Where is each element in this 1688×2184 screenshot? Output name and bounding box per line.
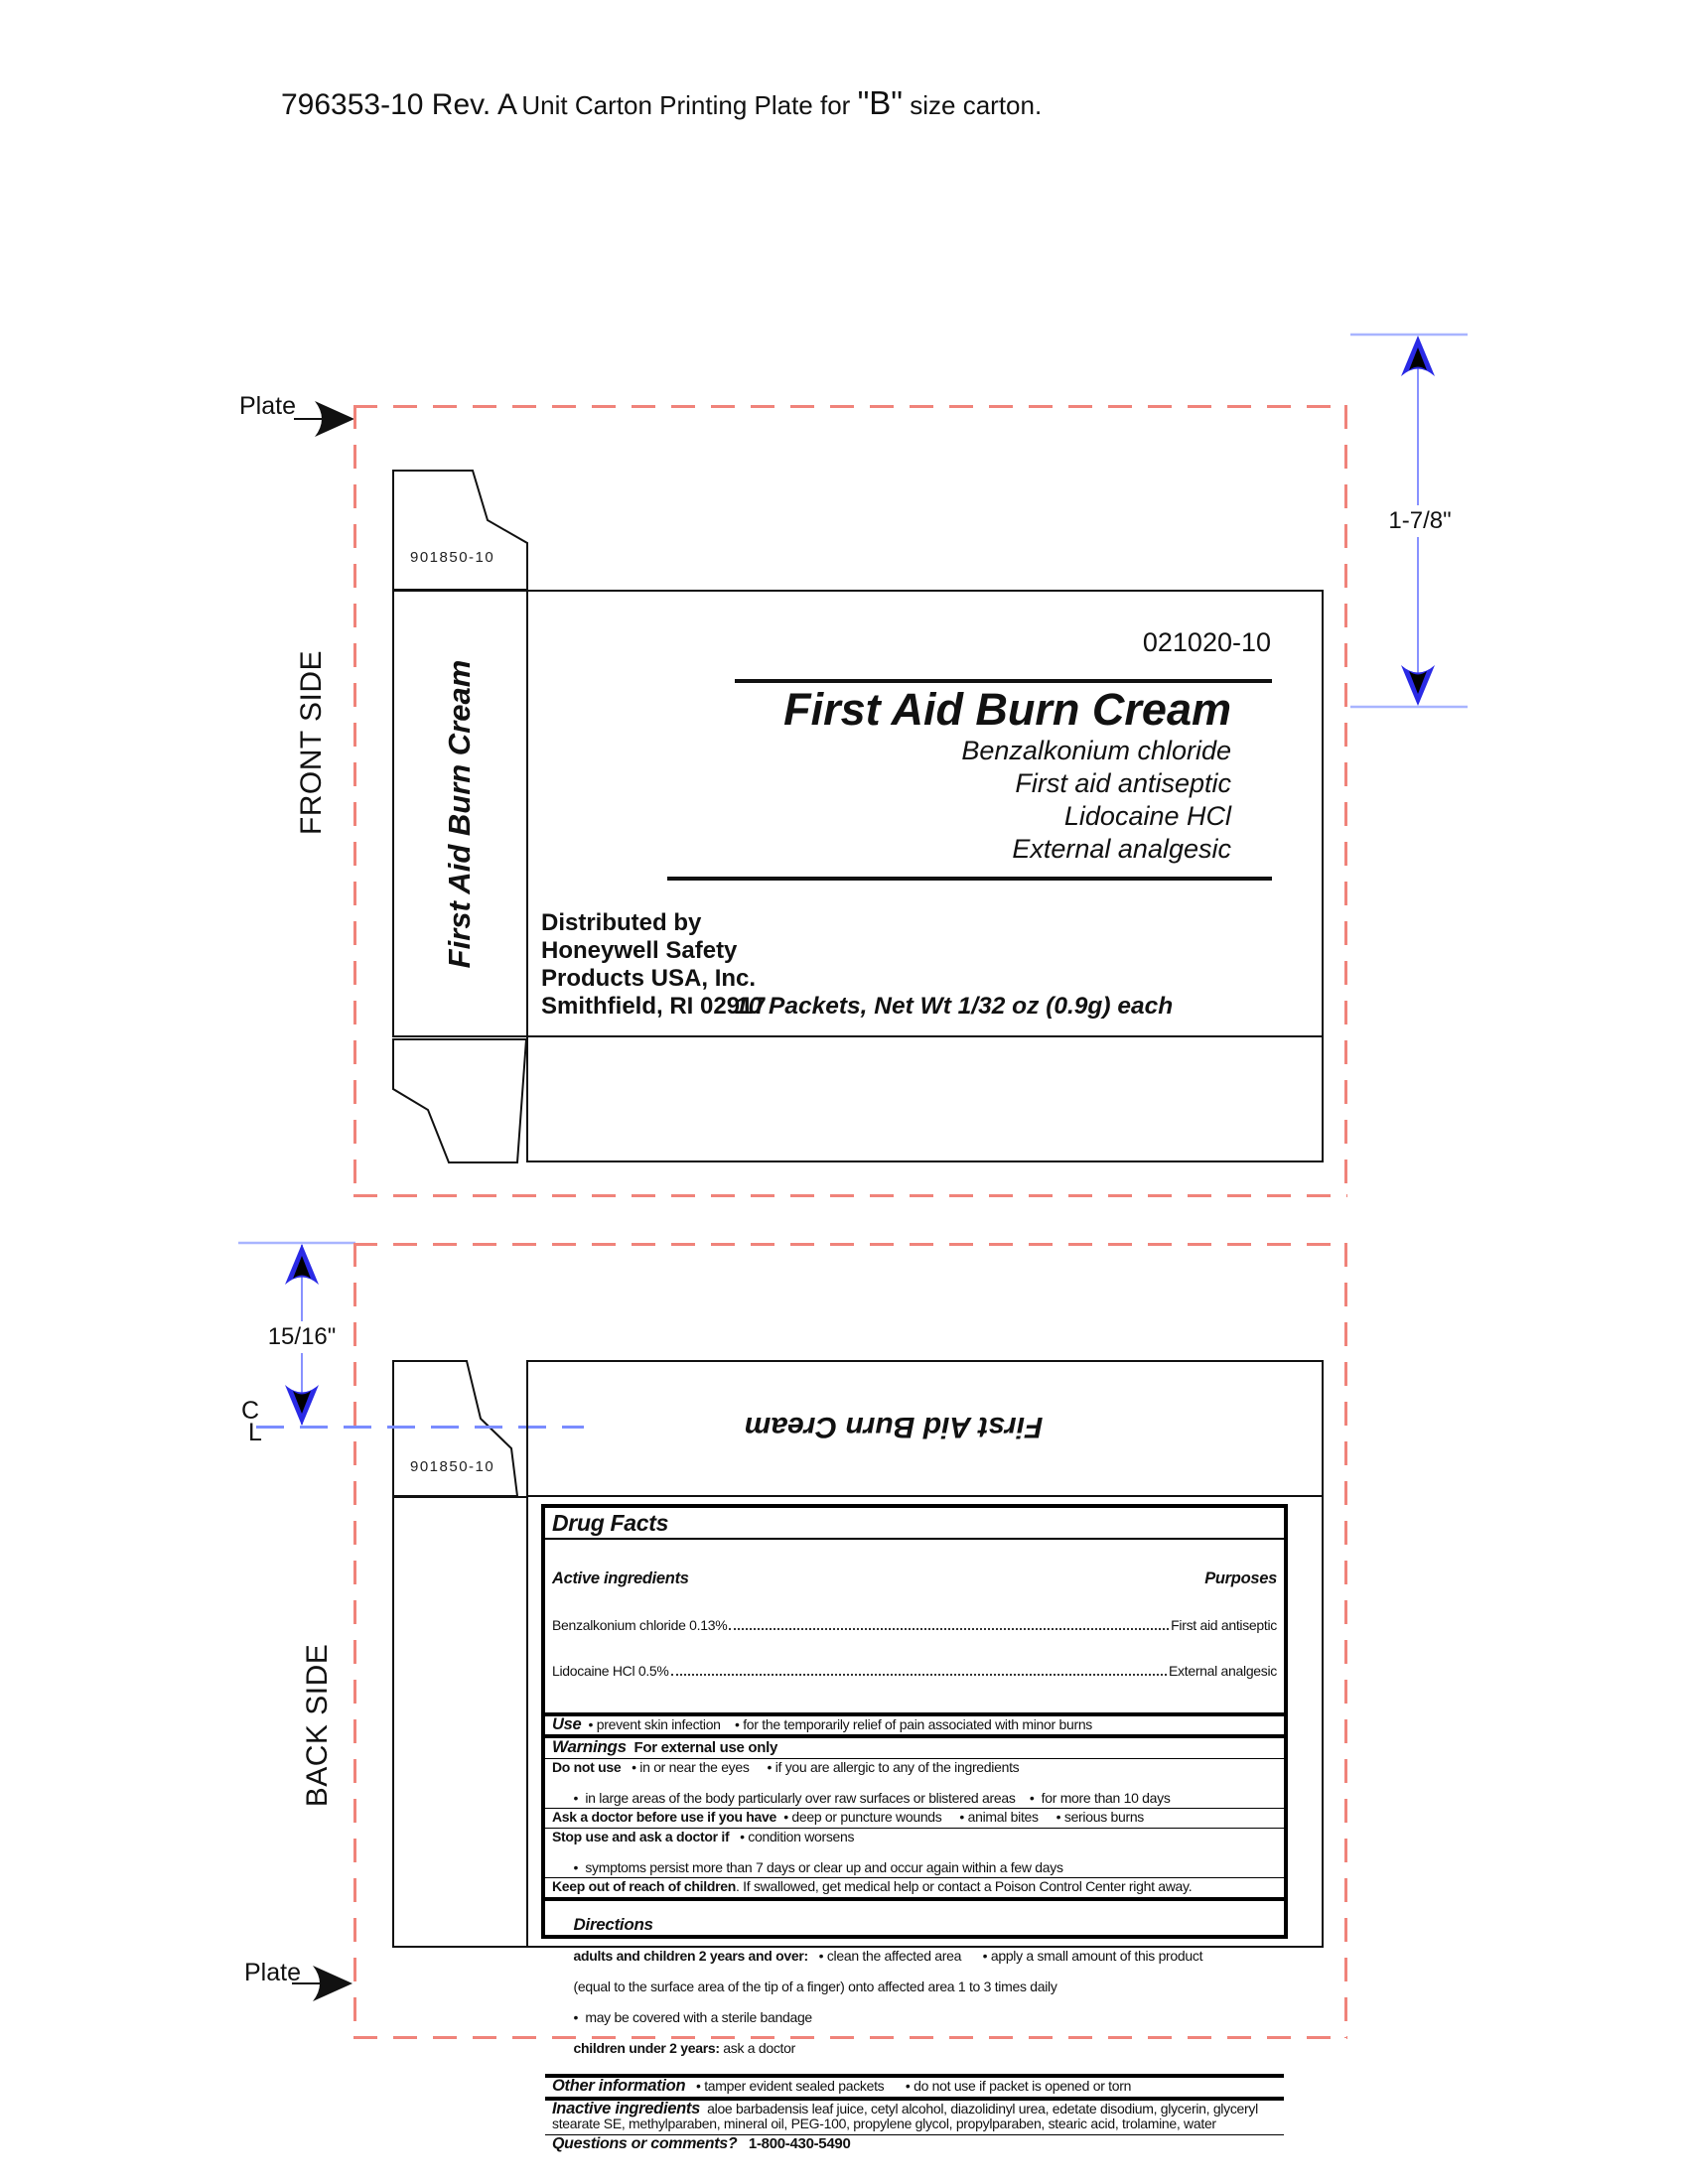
directions-line4-label: children under 2 years: <box>574 2040 720 2056</box>
front-spine-title: First Aid Burn Cream <box>442 655 478 973</box>
active-ingredients-heading: Active ingredients <box>552 1571 689 1587</box>
active-ingredient-purpose: First aid antiseptic <box>1171 1618 1277 1634</box>
front-product-title: First Aid Burn Cream <box>635 685 1231 735</box>
warnings-subtext: For external use only <box>627 1739 777 1756</box>
front-product-sub4: External analgesic <box>635 833 1231 866</box>
back-plate-boundary-right <box>1344 1243 1347 2038</box>
directions-line4: ask a doctor <box>720 2040 795 2056</box>
centerline-symbol-l: L <box>248 1422 262 1443</box>
questions-phone: 1-800-430-5490 <box>737 2135 850 2152</box>
front-part-number: 021020-10 <box>1033 627 1271 658</box>
front-rule-top <box>735 679 1272 683</box>
use-label: Use <box>552 1715 581 1733</box>
drug-facts-questions-row: Questions or comments? 1-800-430-5490 <box>545 2135 1284 2154</box>
front-distributor-line2: Honeywell Safety <box>541 937 767 965</box>
directions-line3: • may be covered with a sterile bandage <box>574 2009 812 2025</box>
dotted-leader <box>671 1674 1167 1676</box>
front-product-sub3: Lidocaine HCl <box>635 800 1231 833</box>
front-distributor-block: Distributed by Honeywell Safety Products… <box>541 909 767 1021</box>
inactive-label: Inactive ingredients <box>552 2100 700 2117</box>
front-rule-bottom <box>667 877 1272 881</box>
sheet-title-size-letter: "B" <box>858 84 903 121</box>
warnings-label: Warnings <box>552 1737 627 1756</box>
front-side-label: FRONT SIDE <box>295 604 329 882</box>
drug-facts-actives-section: Active ingredients Purposes Benzalkonium… <box>545 1540 1284 1716</box>
back-flap-code: 901850-10 <box>410 1458 494 1475</box>
front-plate-boundary-right <box>1344 405 1347 1197</box>
askdoctor-text: • deep or puncture wounds • animal bites… <box>776 1809 1144 1825</box>
drug-facts-title: Drug Facts <box>545 1508 1284 1540</box>
dotted-leader <box>729 1628 1169 1630</box>
other-info-text: • tamper evident sealed packets • do not… <box>685 2078 1131 2094</box>
front-flap-code: 901850-10 <box>410 549 494 566</box>
back-spine-panel <box>392 1496 528 1948</box>
front-bottom-flap-outline <box>393 1039 526 1162</box>
front-top-flap-outline <box>393 471 527 590</box>
drug-facts-directions-section: Directions adults and children 2 years a… <box>545 1901 1284 2079</box>
active-ingredient-purpose: External analgesic <box>1169 1664 1277 1680</box>
directions-line1-label: adults and children 2 years and over: <box>574 1948 808 1964</box>
front-net-weight: 10 Packets, Net Wt 1/32 oz (0.9g) each <box>735 993 1173 1021</box>
stopuse-text: • condition worsens <box>729 1829 854 1844</box>
front-plate-boundary-top <box>353 405 1347 408</box>
back-side-label: BACK SIDE <box>301 1586 335 1864</box>
front-product-sub1: Benzalkonium chloride <box>635 735 1231 767</box>
front-product-sub2: First aid antiseptic <box>635 767 1231 800</box>
front-product-block: First Aid Burn Cream Benzalkonium chlori… <box>635 685 1231 866</box>
questions-label: Questions or comments? <box>552 2135 737 2152</box>
back-plate-boundary-left <box>353 1243 356 2038</box>
front-plate-label: Plate <box>239 392 296 421</box>
donotuse-text: • in or near the eyes • if you are aller… <box>621 1759 1019 1775</box>
drug-facts-other-row: Other information • tamper evident seale… <box>545 2078 1284 2101</box>
keepout-text: . If swallowed, get medical help or cont… <box>736 1878 1192 1894</box>
drug-facts-keepout-row: Keep out of reach of children. If swallo… <box>545 1878 1284 1901</box>
directions-line1: • clean the affected area • apply a smal… <box>808 1948 1202 1964</box>
askdoctor-label: Ask a doctor before use if you have <box>552 1809 776 1825</box>
back-flipped-title: First Aid Burn Cream <box>541 1410 1246 1443</box>
sheet-title-text: Unit Carton Printing Plate for <box>521 90 857 120</box>
sheet-title-code: 796353-10 Rev. A <box>281 88 517 121</box>
front-distributor-line4: Smithfield, RI 02917 <box>541 993 767 1021</box>
stopuse-label: Stop use and ask a doctor if <box>552 1829 729 1844</box>
drug-facts-warnings-row: Warnings For external use only <box>545 1738 1284 1759</box>
dim-right-label: 1-7/8" <box>1378 505 1462 537</box>
directions-line2: (equal to the surface area of the tip of… <box>574 1979 1057 1994</box>
front-distributor-line3: Products USA, Inc. <box>541 965 767 993</box>
stopuse-line2: • symptoms persist more than 7 days or c… <box>574 1859 1063 1875</box>
back-top-flap-outline <box>393 1361 517 1496</box>
dim-left-label: 15/16" <box>256 1321 348 1353</box>
active-ingredient-name: Benzalkonium chloride 0.13% <box>552 1618 727 1634</box>
active-ingredient-row: Benzalkonium chloride 0.13% First aid an… <box>552 1618 1277 1634</box>
front-plate-boundary-left <box>353 405 356 1197</box>
back-panel-divider <box>528 1495 1322 1497</box>
purposes-heading: Purposes <box>1204 1571 1277 1587</box>
back-plate-label: Plate <box>244 1959 301 1987</box>
front-plate-boundary-bottom <box>353 1194 1347 1197</box>
drug-facts-askdoctor-row: Ask a doctor before use if you have • de… <box>545 1809 1284 1829</box>
sheet-title-end: size carton. <box>903 90 1042 120</box>
drug-facts-box: Drug Facts Active ingredients Purposes B… <box>541 1504 1288 1939</box>
sheet-title: 796353-10 Rev. A Unit Carton Printing Pl… <box>281 84 1042 122</box>
front-distributor-line1: Distributed by <box>541 909 767 937</box>
drug-facts-donotuse-row: Do not use • in or near the eyes • if yo… <box>545 1759 1284 1810</box>
keepout-label: Keep out of reach of children <box>552 1878 736 1894</box>
printing-plate-sheet: 796353-10 Rev. A Unit Carton Printing Pl… <box>0 0 1688 2184</box>
front-lower-panel <box>526 1035 1324 1162</box>
back-plate-boundary-top <box>353 1243 1347 1246</box>
donotuse-label: Do not use <box>552 1759 621 1775</box>
drug-facts-use-row: Use • prevent skin infection • for the t… <box>545 1716 1284 1739</box>
directions-label: Directions <box>574 1915 653 1934</box>
active-ingredient-row: Lidocaine HCl 0.5% External analgesic <box>552 1664 1277 1680</box>
other-info-label: Other information <box>552 2077 685 2095</box>
use-text: • prevent skin infection • for the tempo… <box>581 1716 1092 1732</box>
donotuse-line2: • in large areas of the body particularl… <box>574 1790 1171 1806</box>
drug-facts-inactive-row: Inactive ingredients aloe barbadensis le… <box>545 2101 1284 2135</box>
active-ingredient-name: Lidocaine HCl 0.5% <box>552 1664 669 1680</box>
drug-facts-stopuse-row: Stop use and ask a doctor if • condition… <box>545 1829 1284 1879</box>
